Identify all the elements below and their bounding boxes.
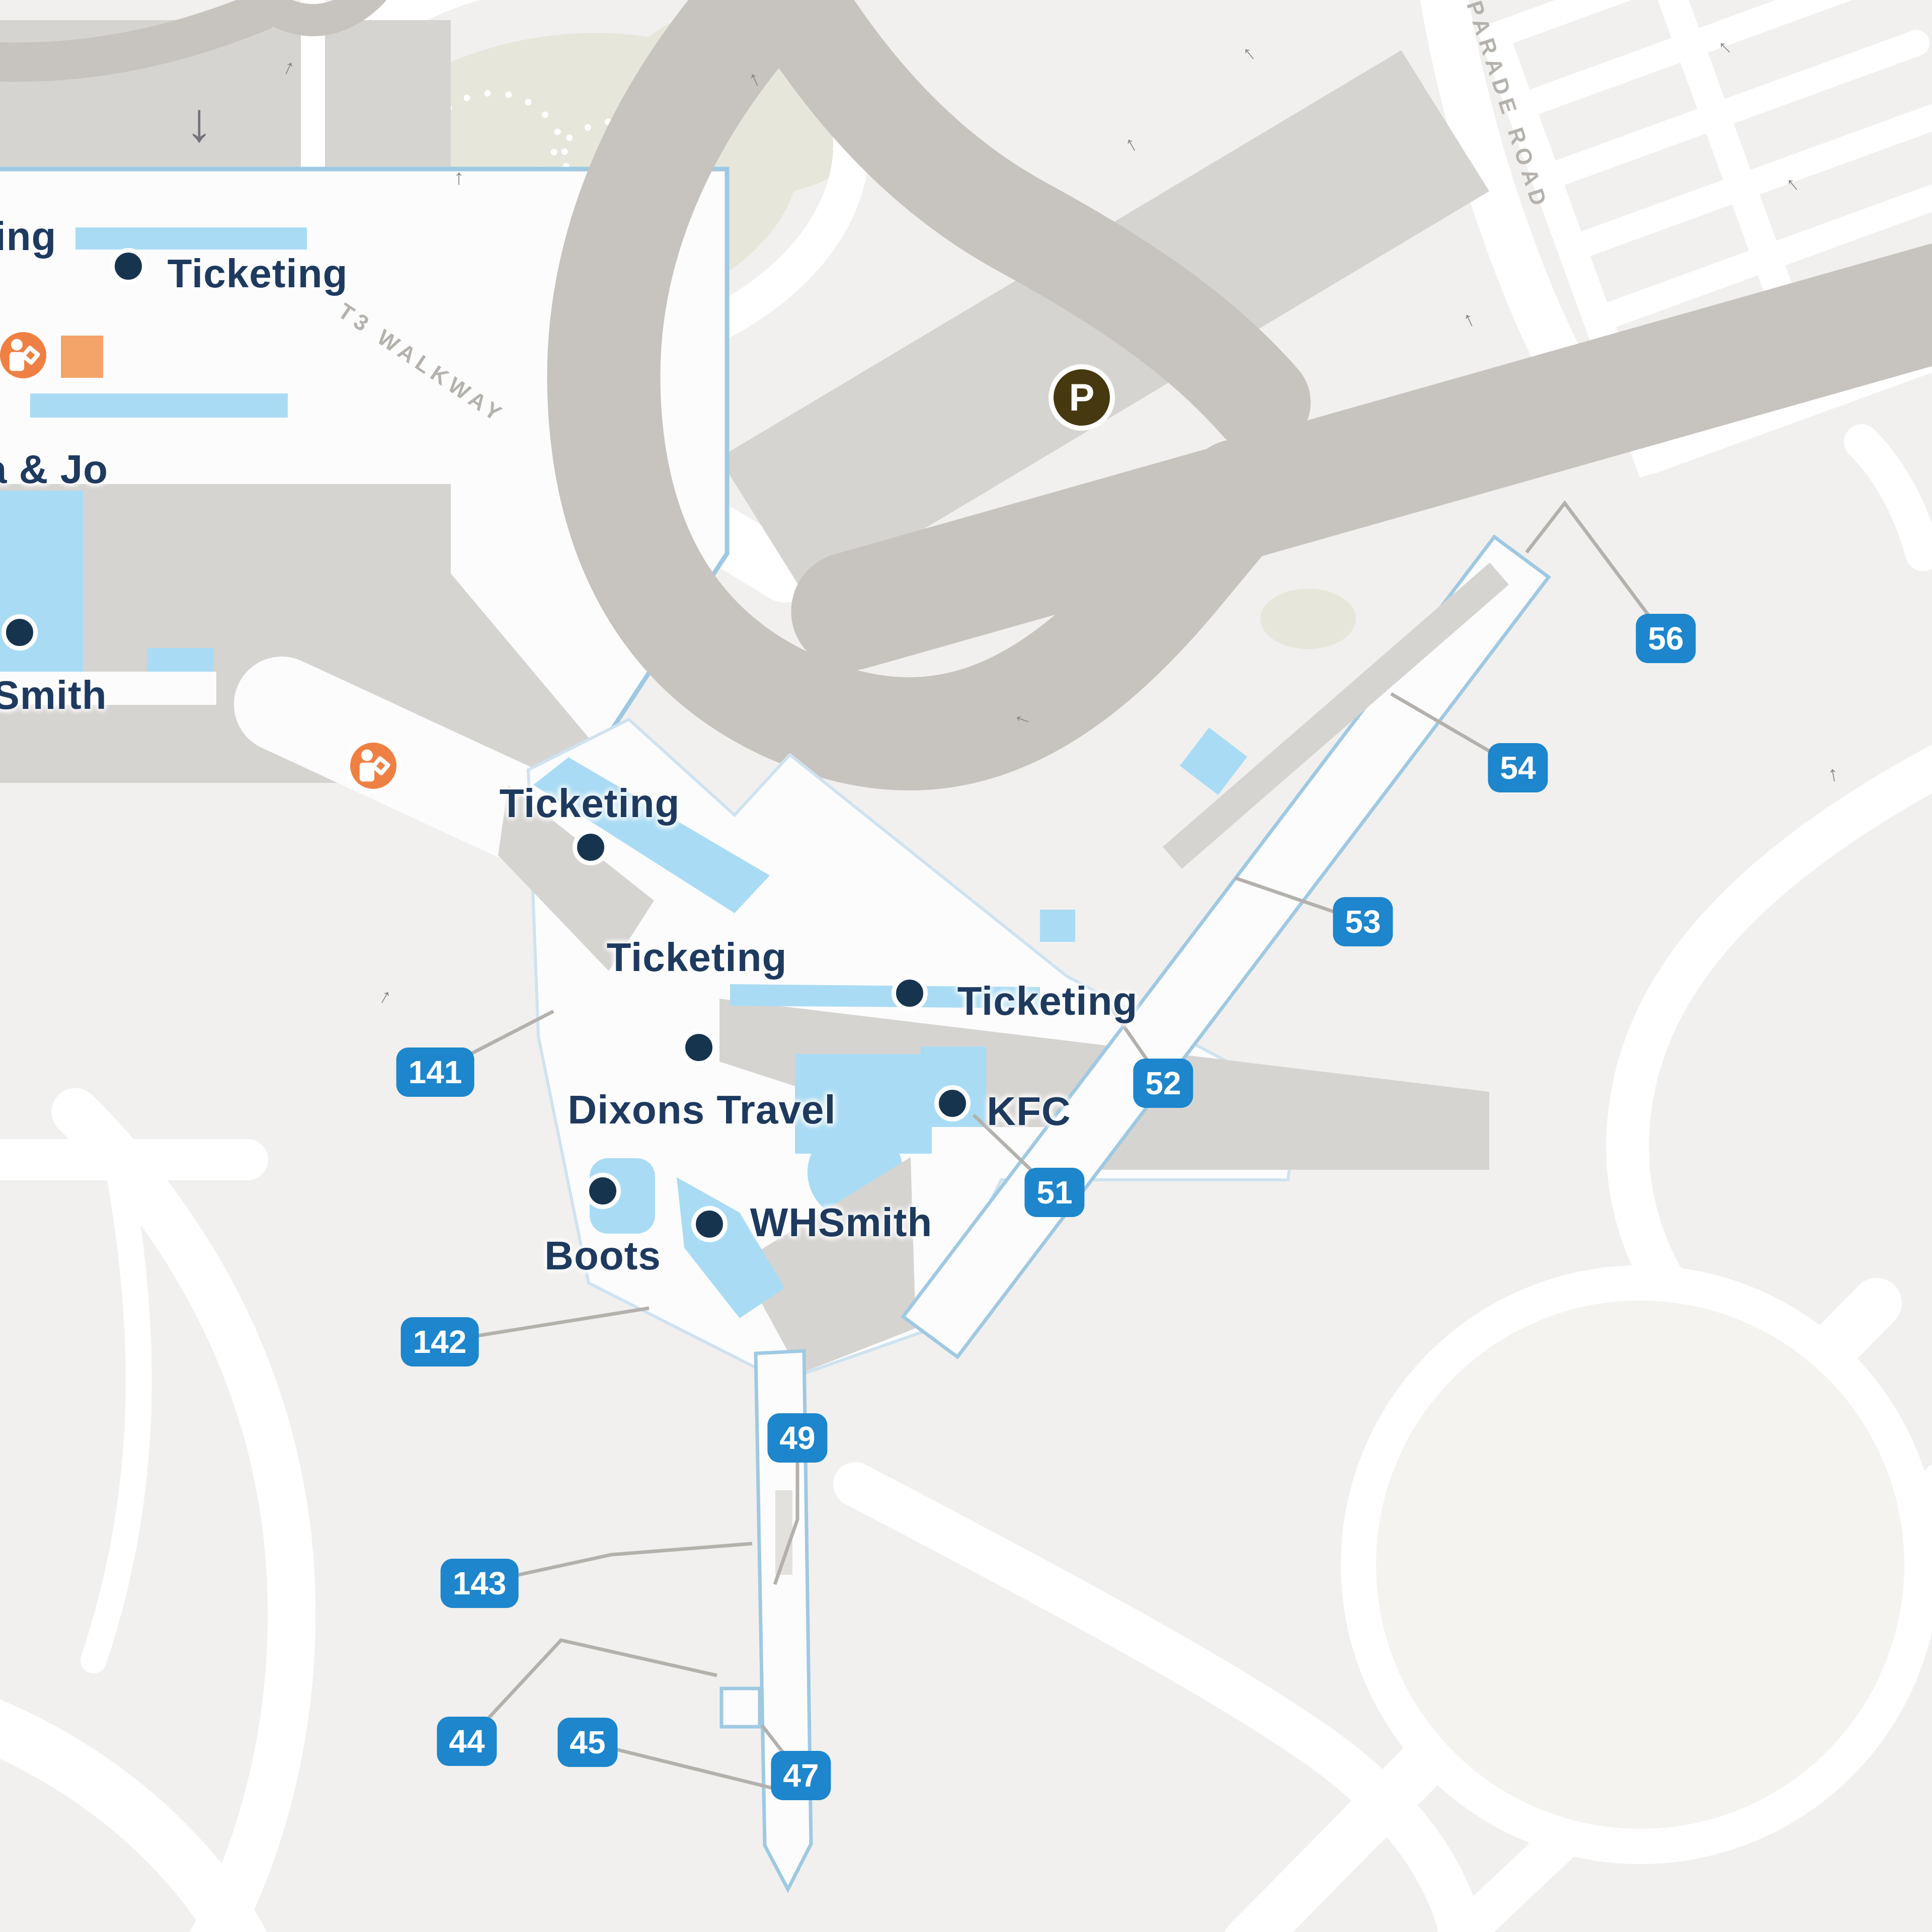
poi-dot: [585, 1173, 621, 1209]
airport-terminal-map: T3 WALKWAYPARADE ROADTicketingTicketinga…: [0, 0, 1932, 1932]
gate-marker-51[interactable]: 51: [1024, 1168, 1084, 1217]
place-label: KFC: [987, 1088, 1071, 1135]
security-checkpoint-icon[interactable]: [346, 738, 401, 793]
place-label: Smith: [0, 672, 107, 718]
gate-marker-141[interactable]: 141: [396, 1048, 474, 1097]
direction-arrow-icon: →: [443, 168, 467, 189]
place-label: WHSmith: [750, 1199, 933, 1246]
gate-marker-45[interactable]: 45: [557, 1718, 617, 1767]
place-label: Ticketing: [500, 780, 680, 827]
poi-dot: [691, 1206, 728, 1242]
gate-marker-53[interactable]: 53: [1333, 897, 1393, 946]
poi-dot: [110, 248, 146, 284]
gate-marker-142[interactable]: 142: [401, 1317, 479, 1366]
entrance-arrow-icon: ↓: [186, 91, 213, 154]
security-officer-glyph: [0, 332, 46, 378]
gate-marker-143[interactable]: 143: [441, 1559, 519, 1608]
leader-line-143: [479, 1544, 752, 1583]
gate-marker-49[interactable]: 49: [767, 1413, 827, 1463]
place-label: Ticketing: [607, 934, 787, 981]
poi-dot: [2, 614, 38, 651]
gate-marker-44[interactable]: 44: [437, 1717, 497, 1766]
security-checkpoint-icon[interactable]: [0, 328, 51, 383]
gate-marker-52[interactable]: 52: [1133, 1059, 1193, 1108]
gate-marker-47[interactable]: 47: [771, 1751, 831, 1800]
poi-dot: [934, 1085, 971, 1121]
poi-dot: [681, 1029, 717, 1066]
place-label: Ticketing: [0, 213, 56, 260]
place-label: Boots: [544, 1233, 661, 1279]
poi-dot: [573, 829, 609, 865]
direction-arrow-icon: →: [1816, 763, 1844, 788]
place-label: Dixons Travel: [568, 1087, 836, 1133]
place-label: Ticketing: [957, 978, 1138, 1024]
place-label: a & Jo: [0, 446, 108, 493]
gate-marker-56[interactable]: 56: [1636, 614, 1696, 663]
security-officer-glyph: [350, 743, 396, 789]
poi-dot: [892, 975, 928, 1011]
gate-marker-54[interactable]: 54: [1488, 743, 1548, 792]
place-label: Ticketing: [168, 251, 348, 297]
parking-icon[interactable]: P: [1049, 364, 1115, 431]
